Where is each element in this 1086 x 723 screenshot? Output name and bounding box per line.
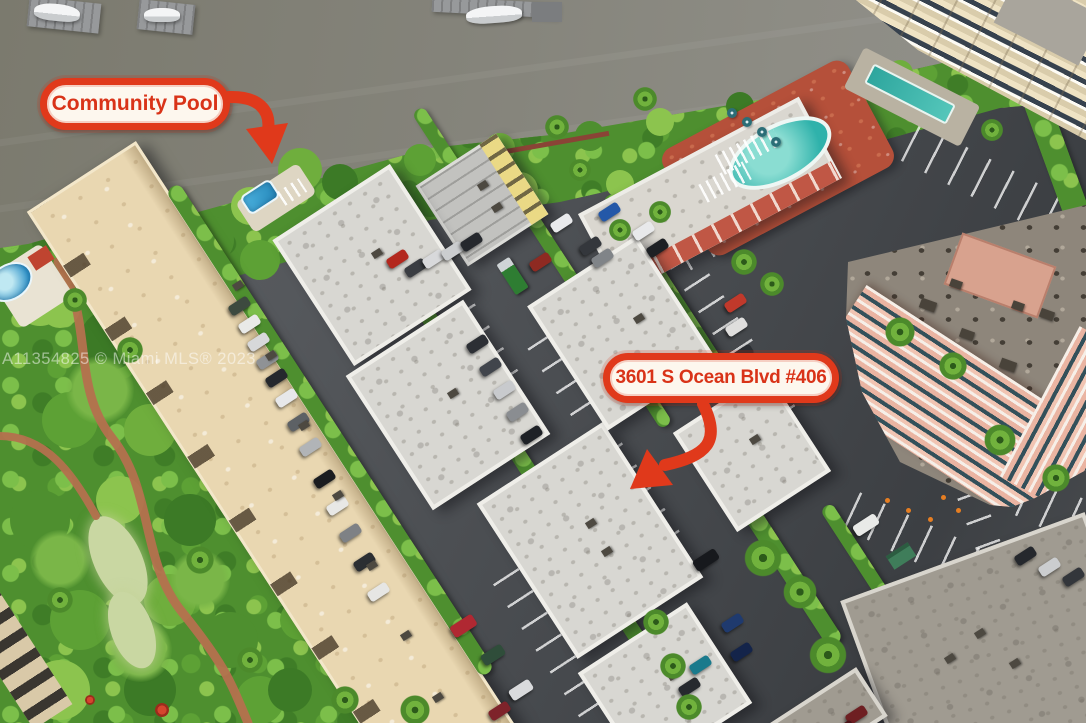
palm-tree bbox=[675, 693, 703, 721]
boat bbox=[144, 8, 180, 22]
traffic-cone bbox=[941, 495, 946, 500]
flowering-bush bbox=[155, 703, 169, 717]
flowering-bush bbox=[85, 695, 95, 705]
palm-tree bbox=[759, 271, 785, 297]
tree-canopy bbox=[404, 144, 436, 176]
palm-tree bbox=[1041, 463, 1071, 493]
callout-address: 3601 S Ocean Blvd #406 bbox=[603, 353, 839, 403]
lawn-patch bbox=[30, 530, 90, 590]
palm-tree bbox=[632, 86, 658, 112]
garbage-truck bbox=[496, 257, 528, 295]
car bbox=[729, 641, 753, 662]
pool-umbrella bbox=[757, 127, 767, 137]
palm-tree bbox=[884, 316, 916, 348]
callout-address-label: 3601 S Ocean Blvd #406 bbox=[616, 367, 827, 389]
palm-tree bbox=[608, 218, 632, 242]
palm-tree bbox=[62, 287, 88, 313]
palm-tree bbox=[544, 114, 570, 140]
palm-tree bbox=[185, 545, 215, 575]
palm-tree bbox=[648, 200, 672, 224]
pool-umbrella bbox=[727, 108, 737, 118]
palm-tree bbox=[782, 574, 818, 610]
garden-shrub bbox=[268, 668, 312, 712]
callout-community-pool: Community Pool bbox=[40, 78, 230, 130]
car bbox=[528, 251, 552, 272]
callout-community-pool-label: Community Pool bbox=[52, 92, 219, 116]
pool-umbrella bbox=[742, 117, 752, 127]
palm-tree bbox=[938, 351, 968, 381]
boat-lift bbox=[532, 2, 562, 22]
palm-tree bbox=[330, 685, 360, 715]
car bbox=[549, 212, 573, 233]
traffic-cone bbox=[885, 498, 890, 503]
tree-canopy bbox=[240, 240, 280, 280]
palm-tree bbox=[659, 652, 687, 680]
mls-watermark: A11354825 © Miami MLS® 2023 bbox=[2, 350, 256, 369]
car bbox=[480, 643, 507, 666]
aerial-photo: A11354825 © Miami MLS® 2023 Community Po… bbox=[0, 0, 1086, 723]
car bbox=[723, 292, 747, 313]
palm-tree bbox=[568, 158, 592, 182]
car bbox=[508, 678, 535, 701]
palm-tree bbox=[46, 586, 74, 614]
palm-tree bbox=[983, 423, 1017, 457]
car bbox=[692, 548, 720, 572]
tree-canopy bbox=[646, 108, 674, 136]
palm-tree bbox=[399, 694, 431, 723]
palm-tree bbox=[980, 118, 1004, 142]
traffic-cone bbox=[928, 517, 933, 522]
car bbox=[720, 612, 744, 633]
pool-umbrella bbox=[771, 137, 781, 147]
traffic-cone bbox=[956, 508, 961, 513]
palm-tree bbox=[743, 538, 783, 578]
garden-shrub bbox=[164, 494, 216, 546]
palm-tree bbox=[808, 635, 848, 675]
palm-tree bbox=[236, 646, 264, 674]
traffic-cone bbox=[906, 508, 911, 513]
palm-tree bbox=[642, 608, 670, 636]
palm-tree bbox=[730, 248, 758, 276]
